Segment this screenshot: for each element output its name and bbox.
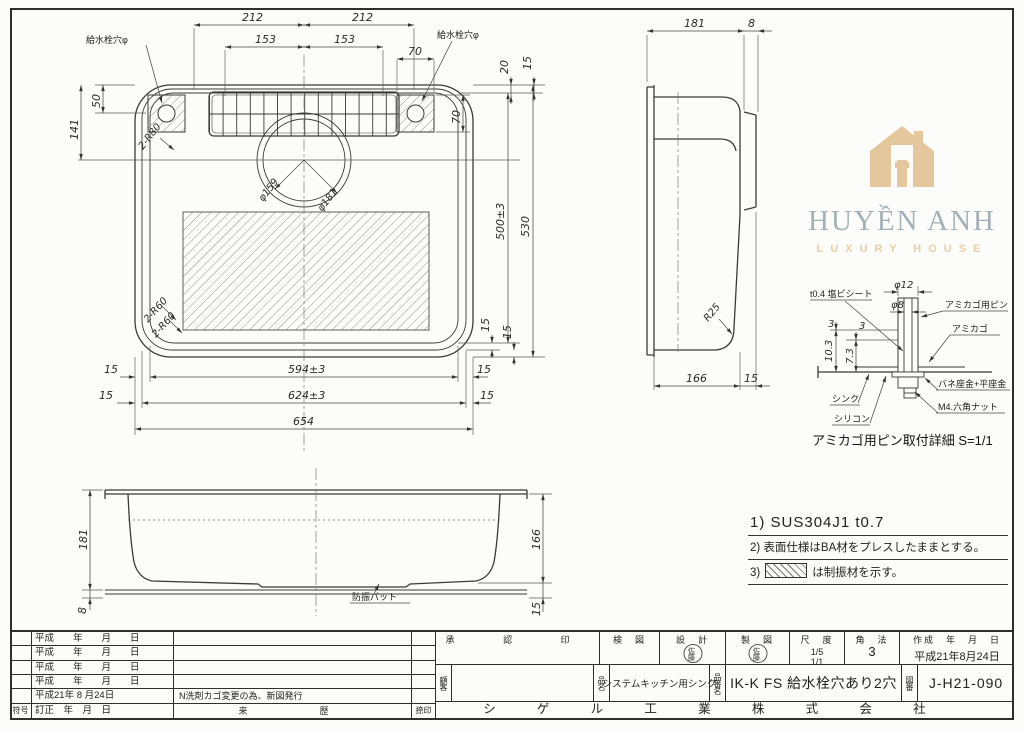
dim-15-topright: 15 — [521, 56, 534, 70]
dim-side-166: 166 — [686, 372, 707, 385]
dim-7-3: 7.3 — [845, 348, 856, 364]
dim-15-r1: 15 — [477, 363, 491, 376]
dim-500: 500±3 — [494, 203, 507, 240]
company-name: シゲル工業株式会社 — [436, 702, 1014, 717]
hatch-swatch-icon — [765, 563, 807, 578]
logo-subtitle: LUXURY HOUSE — [793, 243, 1011, 255]
dim-side-15: 15 — [744, 372, 758, 385]
label-faucet-right: 給水栓穴φ — [437, 29, 479, 40]
label-anti-vibration-pad: 防振パット — [352, 591, 397, 602]
dim-15-r2: 15 — [480, 389, 494, 402]
dim-front-15: 15 — [530, 602, 543, 616]
dim-dia159: φ159 — [257, 177, 281, 204]
product-name-value: システムキッチン用シンク — [610, 665, 710, 701]
drawing-canvas: 212 212 153 153 70 給水栓穴φ 給水栓穴φ 50 141 70… — [0, 0, 1024, 730]
dim-212-left: 212 — [242, 11, 263, 24]
design-stamp: 佐藤 — [683, 644, 702, 663]
check-cell: 検 図 — [600, 632, 660, 664]
part-info-row: 顧客 品名 システムキッチン用シンク 品番名 IK-K FS 給水栓穴あり2穴 … — [436, 665, 1014, 702]
label-sink: シンク — [832, 394, 859, 404]
dim-3b: 3 — [859, 321, 865, 332]
scale-value-2: 1/1 — [790, 657, 844, 667]
customer-value — [452, 665, 594, 701]
title-block-right: 承 認 印 検 図 設 計 佐藤 製 図 佐藤 尺 度 1/51/1 — [436, 632, 1014, 718]
label-basket-pin: アミカゴ用ピン — [945, 299, 1008, 310]
dim-10-3: 10.3 — [824, 340, 835, 362]
projection-cell: 角 法 3 — [845, 632, 900, 664]
front-view — [105, 468, 527, 616]
note-2: 2) 表面仕様はBA材をプレスしたままとする。 — [748, 536, 1008, 560]
note-3-text: は制振材を示す。 — [812, 567, 903, 579]
dim-dia8: φ8 — [891, 300, 904, 311]
label-basket: アミカゴ — [952, 323, 988, 334]
dim-3a: 3 — [828, 319, 834, 330]
part-number-label: 品番名 — [710, 665, 726, 701]
approval-cell: 承 認 印 — [436, 632, 600, 664]
logo-title: HUYỀN ANH — [793, 205, 1011, 238]
dim-153-left: 153 — [255, 33, 276, 46]
revision-header-stamp: 捺印 — [412, 704, 435, 718]
projection-value: 3 — [845, 647, 899, 657]
label-pvc-sheet: t0.4 塩ビシート — [810, 288, 873, 299]
dim-front-166: 166 — [530, 529, 543, 550]
house-h-icon — [862, 120, 942, 192]
dim-front-181: 181 — [77, 529, 90, 550]
draft-cell: 製 図 佐藤 — [726, 632, 790, 664]
dim-153-right: 153 — [334, 33, 355, 46]
dim-624: 624±3 — [288, 389, 325, 402]
dim-70-right: 70 — [450, 110, 463, 124]
dim-20: 20 — [498, 60, 511, 74]
revision-row: 平成 年 月 日 — [10, 675, 435, 689]
extension-lines-side-view — [647, 35, 758, 390]
design-cell: 設 計 佐藤 — [660, 632, 726, 664]
dim-15-br2: 15 — [501, 325, 514, 339]
dim-front-8: 8 — [76, 607, 89, 614]
draft-stamp: 佐藤 — [748, 644, 767, 663]
revision-header-sym: 符号 — [10, 704, 32, 718]
drawing-sheet: 212 212 153 153 70 給水栓穴φ 給水栓穴φ 50 141 70… — [0, 0, 1024, 730]
note-3: 3)は制振材を示す。 — [748, 560, 1008, 585]
dim-side-8: 8 — [748, 17, 755, 30]
label-r25: R25 — [702, 302, 723, 324]
drawing-number-value: J-H21-090 — [918, 665, 1014, 701]
dim-15-l2: 15 — [99, 389, 113, 402]
dim-dia12: φ12 — [894, 280, 913, 291]
part-number-value: IK-K FS 給水栓穴あり2穴 — [726, 665, 902, 701]
label-washer: バネ座金+平座金 — [938, 378, 1006, 389]
customer-label: 顧客 — [436, 665, 452, 701]
dimensions-side-view — [647, 31, 772, 386]
extension-lines-front-view — [82, 490, 552, 598]
dim-594: 594±3 — [288, 363, 325, 376]
watermark-logo: HUYỀN ANH LUXURY HOUSE — [793, 120, 1011, 255]
scale-value-1: 1/5 — [790, 647, 844, 657]
revision-row: 平成 年 月 日 — [10, 632, 435, 646]
revision-row: 平成 年 月 日 — [10, 646, 435, 660]
detail-caption: アミカゴ用ピン取付詳細 S=1/1 — [812, 433, 993, 448]
dim-50: 50 — [90, 94, 103, 108]
revision-header-row: 符号 訂正 年 月 日 来 歴 捺印 — [10, 704, 435, 718]
revision-row: 平成21年 8 月24日 N洗剤カゴ変更の為、新図発行 — [10, 689, 435, 703]
dim-530: 530 — [519, 216, 532, 237]
revision-row: 平成 年 月 日 — [10, 661, 435, 675]
revision-header-date: 訂正 年 月 日 — [32, 704, 174, 718]
revision-table: 平成 年 月 日 平成 年 月 日 平成 年 月 日 平成 年 月 日 — [10, 632, 436, 718]
note-3-prefix: 3) — [750, 567, 760, 579]
dim-654: 654 — [293, 415, 314, 428]
label-silicone: シリコン — [834, 414, 870, 424]
drawing-number-label: 図番 — [902, 665, 918, 701]
created-date: 平成21年8月24日 — [900, 648, 1014, 664]
approval-row: 承 認 印 検 図 設 計 佐藤 製 図 佐藤 尺 度 1/51/1 — [436, 632, 1014, 665]
revision-header-history: 来 歴 — [174, 704, 412, 718]
label-faucet-left: 給水栓穴φ — [86, 34, 128, 45]
notes-list: 1) SUS304J1 t0.7 2) 表面仕様はBA材をプレスしたままとする。… — [748, 511, 1008, 585]
damping-material-area — [183, 212, 429, 330]
label-nut: M4.六角ナット — [938, 401, 998, 412]
dim-212-right: 212 — [352, 11, 373, 24]
note-1: 1) SUS304J1 t0.7 — [748, 511, 1008, 536]
dim-70-top: 70 — [408, 45, 422, 58]
dim-dia181: φ181 — [316, 187, 340, 214]
title-block: 平成 年 月 日 平成 年 月 日 平成 年 月 日 平成 年 月 日 — [10, 630, 1014, 718]
created-cell: 作成 年 月 日 平成21年8月24日 — [900, 632, 1014, 664]
dim-15-br1: 15 — [479, 318, 492, 332]
dim-15-l1: 15 — [104, 363, 118, 376]
faucet-hole-right — [397, 95, 434, 132]
dim-side-181: 181 — [684, 17, 705, 30]
scale-cell: 尺 度 1/51/1 — [790, 632, 845, 664]
dim-141: 141 — [68, 119, 81, 140]
